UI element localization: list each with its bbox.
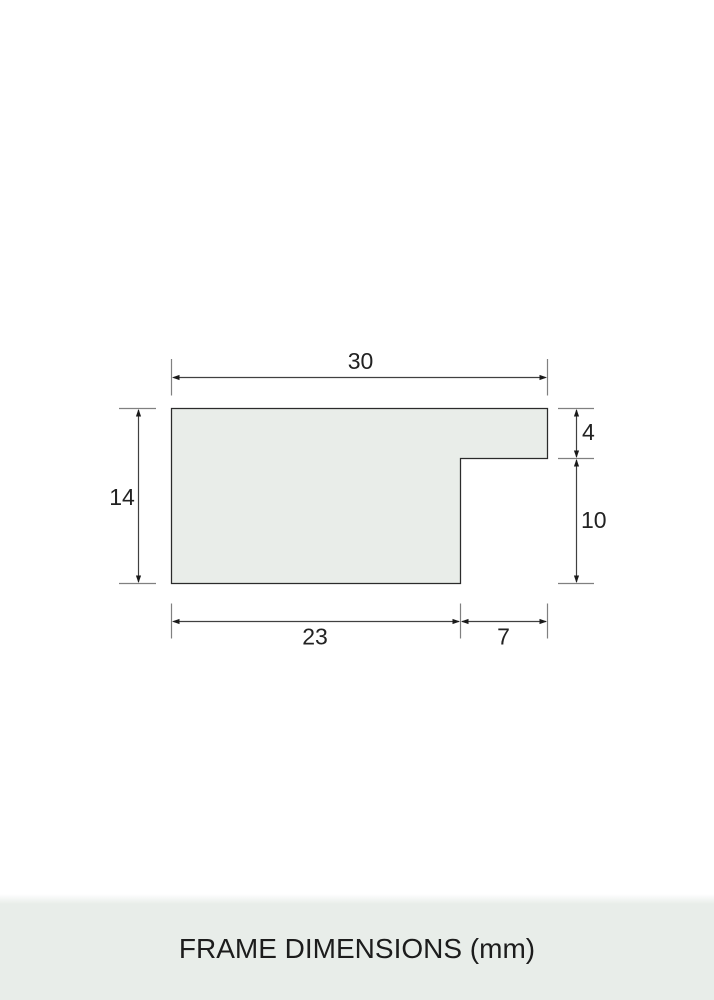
svg-text:23: 23 [302, 624, 328, 650]
svg-text:10: 10 [581, 507, 607, 533]
svg-text:7: 7 [497, 624, 510, 650]
svg-text:30: 30 [348, 348, 374, 374]
svg-text:4: 4 [582, 419, 595, 445]
svg-text:14: 14 [109, 484, 135, 510]
